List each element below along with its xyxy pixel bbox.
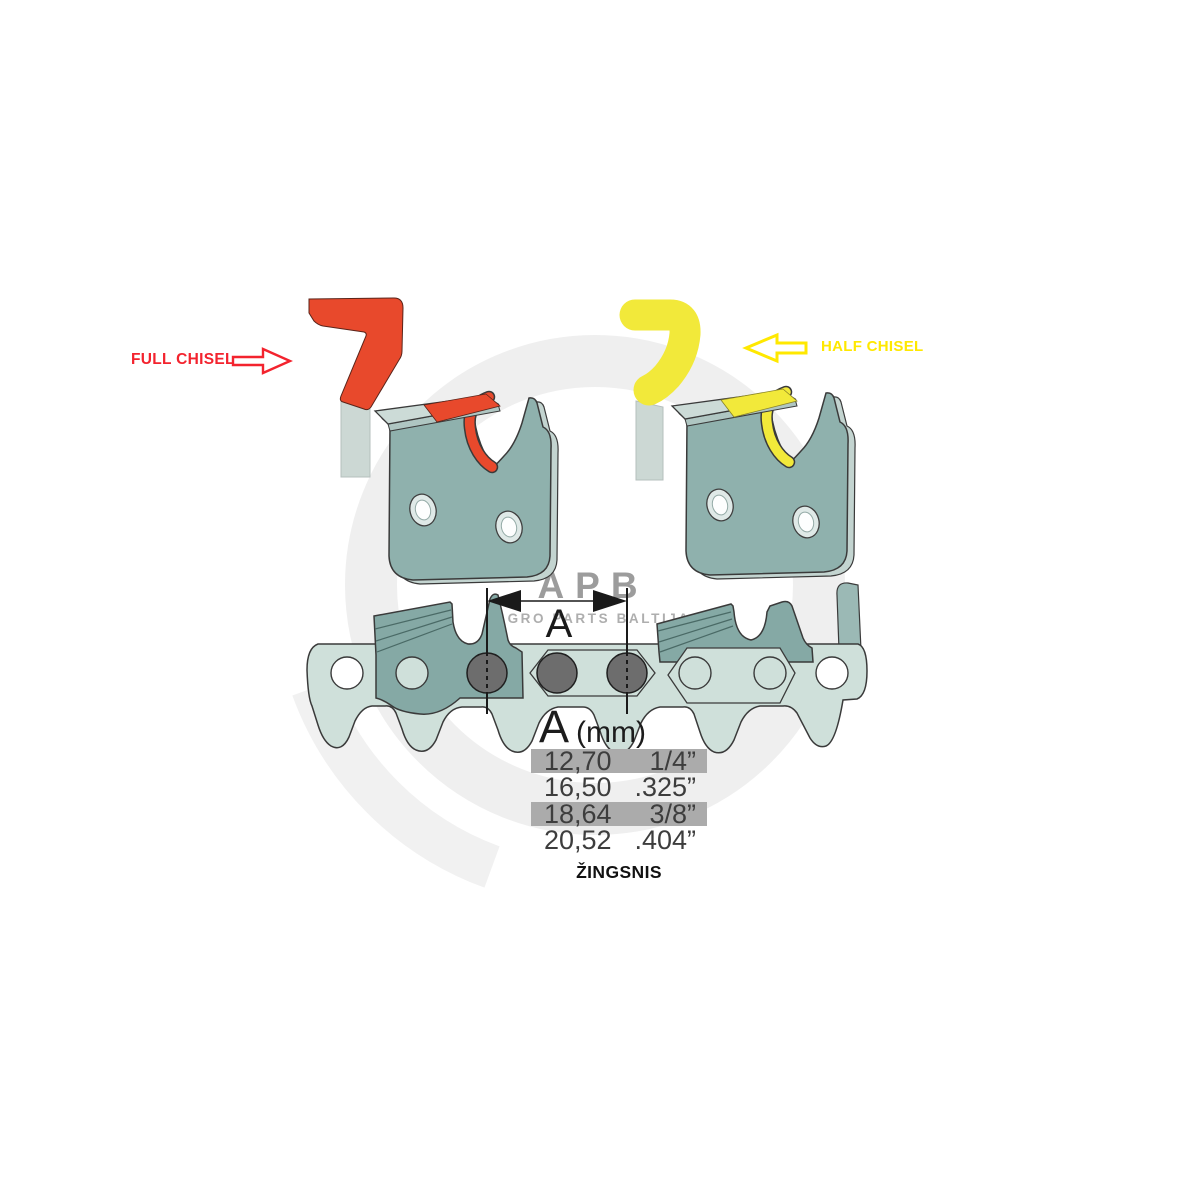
pitch-table-header-letter: A — [539, 707, 569, 747]
half-chisel-side-plate — [636, 401, 663, 480]
chain-cutter-left — [374, 594, 523, 714]
full-chisel-side-plate — [341, 401, 370, 477]
cutter-link-half-chisel — [672, 389, 855, 579]
rivet — [537, 653, 577, 693]
partial-cutter-heel — [837, 583, 861, 650]
pitch-mm: 20,52 — [544, 825, 612, 856]
table-row: 18,64 3/8” — [531, 802, 707, 826]
table-row: 20,52 .404” — [531, 829, 707, 853]
pitch-inch: .404” — [634, 825, 696, 856]
pitch-table: A (mm) 12,70 1/4” 16,50 .325” 18,64 3/8”… — [531, 707, 707, 883]
half-chisel-arrow-icon — [746, 335, 806, 361]
half-chisel-label: HALF CHISEL — [821, 338, 923, 355]
table-row: 16,50 .325” — [531, 776, 707, 800]
strap-hole — [331, 657, 363, 689]
full-chisel-top-plate — [309, 298, 403, 410]
chain-diagram-art: APB AGRO PARTS BALTIJA — [0, 0, 1188, 1188]
strap-hole — [754, 657, 786, 689]
strap-hole — [679, 657, 711, 689]
pitch-caption: ŽINGSNIS — [531, 862, 707, 883]
product-diagram: APB AGRO PARTS BALTIJA — [0, 0, 1188, 1188]
pitch-table-header: A (mm) — [531, 707, 707, 747]
dimension-label: A — [546, 602, 573, 646]
full-chisel-label: FULL CHISEL — [131, 351, 235, 369]
cutter-link-full-chisel — [375, 394, 558, 584]
full-chisel-arrow-icon — [233, 349, 290, 373]
strap-hole — [816, 657, 848, 689]
strap-hole — [396, 657, 428, 689]
pitch-table-rows: 12,70 1/4” 16,50 .325” 18,64 3/8” 20,52 … — [531, 749, 707, 853]
table-row: 12,70 1/4” — [531, 749, 707, 773]
